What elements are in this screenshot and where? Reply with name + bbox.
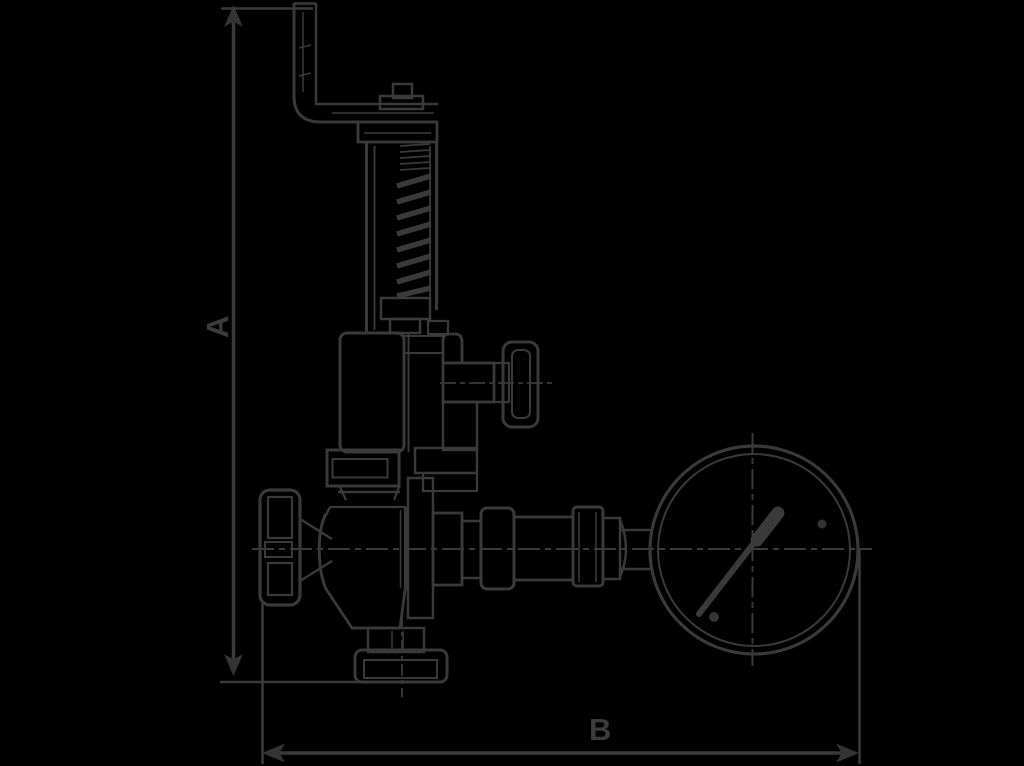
housing-top-plate	[358, 122, 437, 142]
spring-coils	[397, 176, 431, 296]
lifting-lever	[294, 3, 438, 122]
gauge-peg-high	[818, 520, 827, 529]
body-left-edge	[319, 514, 326, 589]
dim-a-label: A	[200, 316, 235, 338]
dimension-a: A	[200, 5, 359, 682]
gauge-needle-tip	[757, 513, 778, 540]
bonnet-body	[340, 333, 404, 452]
lever-tick-1	[299, 45, 311, 48]
valve-body	[319, 492, 447, 697]
gauge-peg-low	[709, 612, 719, 622]
side-tap	[440, 334, 553, 450]
shoulder-step	[428, 321, 448, 334]
inlet-knob	[260, 490, 332, 605]
bonnet	[340, 321, 448, 452]
knob-inner-bottom	[268, 563, 292, 595]
fitting-nut-2	[573, 507, 603, 586]
dim-b-label: B	[589, 712, 611, 747]
tap-knob-inner	[512, 350, 530, 418]
drawing-canvas: A B	[0, 0, 1024, 766]
knob-stem-top	[300, 519, 332, 539]
bottom-flange-inner	[364, 660, 437, 678]
tap-neck	[443, 334, 462, 363]
tap-column-lower	[443, 402, 477, 450]
lever-tick-2	[299, 73, 311, 76]
knob-stem-bottom	[300, 561, 332, 581]
body-bottom-taper	[326, 589, 405, 628]
union-nut-inner	[333, 459, 388, 478]
spring-seat-upper	[381, 298, 430, 319]
spring-housing	[367, 142, 437, 333]
lever-inner-edge	[316, 3, 438, 104]
adjusting-screw-threads	[400, 144, 430, 170]
outlet-stem	[368, 628, 424, 652]
outlet-fittings	[433, 507, 653, 589]
spring-seat-lower	[390, 319, 420, 333]
valve-technical-drawing: A B	[0, 0, 1024, 766]
knob-inner-top	[268, 497, 292, 538]
outlet-boss	[408, 448, 477, 618]
